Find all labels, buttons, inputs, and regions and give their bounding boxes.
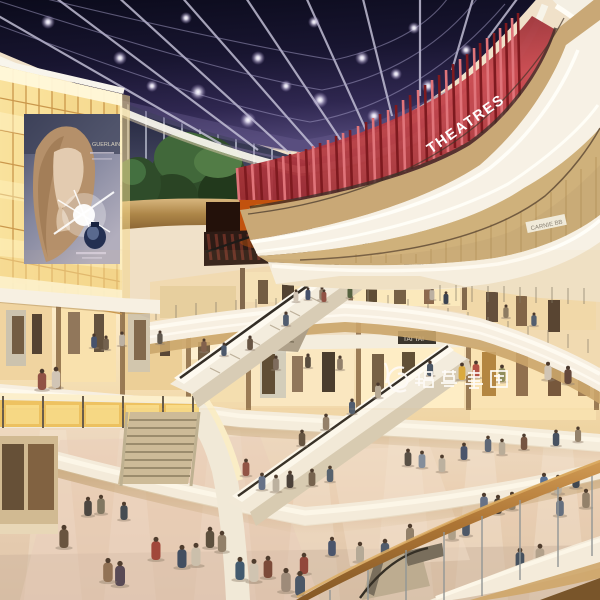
svg-text:GUERLAIN: GUERLAIN bbox=[92, 142, 120, 148]
